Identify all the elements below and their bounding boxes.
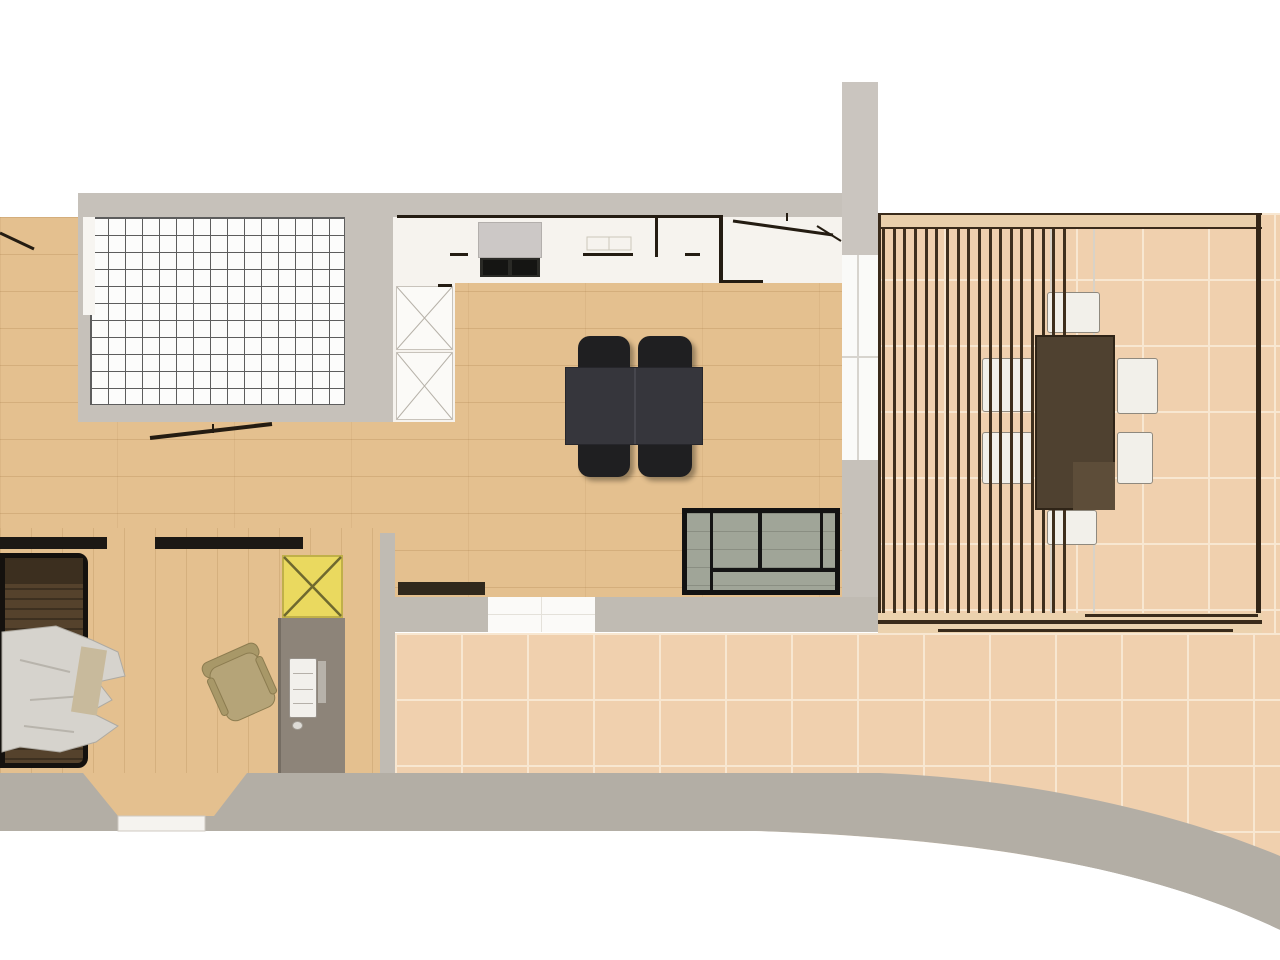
cabinet-x-mark: [397, 287, 452, 419]
desk-chair: [200, 641, 282, 726]
bay-window-sill: [118, 816, 205, 831]
shower-x-mark: [284, 557, 341, 616]
left-edge-door-swing: [0, 233, 34, 249]
plan-overlay: [0, 0, 1280, 960]
floor-plan-canvas: [0, 0, 1280, 960]
bed-blanket: [2, 626, 125, 752]
terrace-door-swing: [150, 424, 272, 438]
entry-door-swing: [733, 221, 833, 235]
sink-icon: [587, 237, 631, 250]
